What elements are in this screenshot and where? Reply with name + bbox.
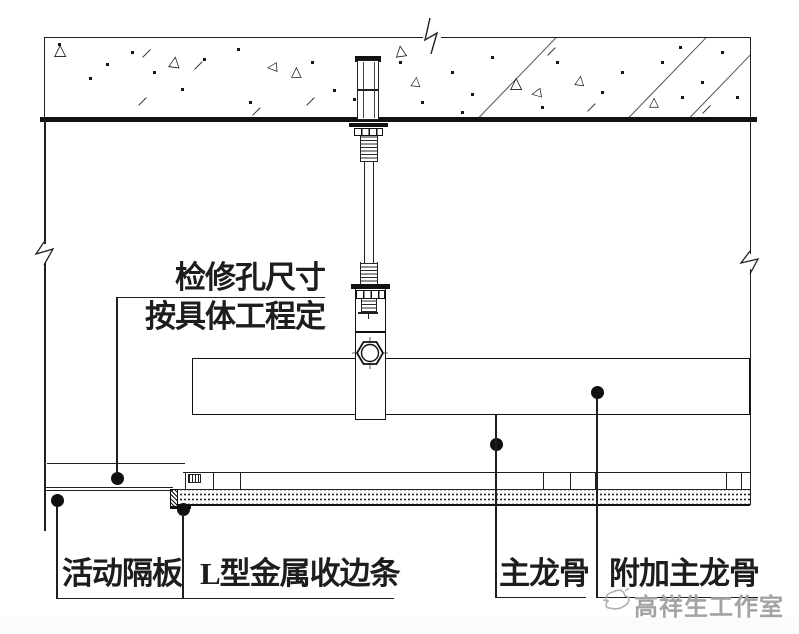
aggregate-dot [237,48,240,51]
aggregate-dot [153,71,156,74]
furring-tick-4 [543,472,544,489]
aggregate-dot [556,61,559,64]
anchor-sleeve-joint [357,89,379,91]
leader-dot-additional-runner [591,386,604,399]
aggregate-dot [679,46,682,49]
furring-tick-2 [213,472,214,489]
furring-clip-detail [188,474,201,483]
edge-trim-leader-vertical [182,514,183,598]
main-runner-label: 主龙骨 [499,558,589,589]
anchor-washer [349,123,388,127]
aggregate-dot [461,111,464,114]
aggregate-dot [621,71,624,74]
aggregate-dot [106,63,109,66]
aggregate-triangle: △ [394,42,408,58]
aggregate-dot [681,96,684,99]
break-symbol-right-wall [739,249,763,276]
furring-tick-7 [726,472,727,489]
bracket-nut [356,290,385,299]
bracket-thread-tail [368,313,369,319]
main-runner-label-underline [495,597,586,598]
aggregate-triangle: △ [168,53,182,69]
aggregate-dash [587,103,596,112]
edge-trim-label-underline [182,598,394,599]
leader-dot-access [111,472,124,485]
slab-hatch: △△△△△△△△△△ [45,38,750,119]
aggregate-dash [138,97,147,106]
aggregate-dot [601,91,604,94]
left-wall-upper [44,120,46,244]
aggregate-dot [333,89,336,92]
aggregate-dot [249,101,252,104]
aggregate-dot [89,77,92,80]
aggregate-dash [252,107,261,116]
aggregate-dot [421,101,424,104]
aggregate-dot [399,61,402,64]
aggregate-dot [203,58,206,61]
anchor-nut [354,128,383,136]
aggregate-dot [131,51,134,54]
studio-logo-icon [601,584,633,614]
additional-runner-leader-vertical [596,398,597,597]
aggregate-dot [491,56,494,59]
aggregate-dash [142,49,151,58]
aggregate-triangle: △ [510,75,522,91]
slab-soffit-line [40,117,757,122]
aggregate-dot [736,96,739,99]
access-note-line2: 按具体工程定 [113,301,325,332]
access-note-line1: 检修孔尺寸 [117,262,325,293]
leader-dot-partition [51,494,64,507]
access-leader-horizontal [117,297,325,298]
furring-top-line [183,472,750,473]
edge-trim-label: L型金属收边条 [200,558,400,589]
aggregate-dot [353,98,356,101]
partition-label-underline [56,598,190,599]
partition-label: 活动隔板 [62,558,182,589]
studio-watermark: 高祥生工作室 [634,587,784,622]
ceiling-board [178,489,750,506]
furring-tick-1 [185,472,186,489]
aggregate-triangle: △ [649,96,659,109]
aggregate-dot [181,88,184,91]
hanger-thread-upper [360,136,378,162]
aggregate-triangle: △ [291,65,302,79]
furring-tick-5 [570,472,571,489]
aggregate-dash [194,61,203,70]
break-symbol-top [420,18,444,54]
hex-bolt-icon [351,334,389,372]
construction-detail-drawing: △△△△△△△△△△ [0,0,799,634]
furring-tick-8 [741,472,742,489]
slab-hatch-line [689,38,750,119]
right-wall-upper [750,120,752,254]
aggregate-triangle: △ [529,87,544,99]
aggregate-dot [701,81,704,84]
aggregate-dot [58,43,61,46]
aggregate-dot [471,93,474,96]
aggregate-dot [721,51,724,54]
bracket-mid-line [355,331,386,333]
partition-top-line-2 [44,490,173,491]
aggregate-dash [306,97,315,106]
partition-top-line-1 [44,487,173,488]
furring-tick-3 [240,472,241,489]
aggregate-dot [451,71,454,74]
aggregate-dot [541,106,544,109]
aggregate-triangle: △ [574,73,586,87]
slab-hatch-line [628,38,709,119]
bracket-top-plate [351,284,390,289]
hanger-thread-lower [360,262,378,285]
hanger-rod [364,162,374,264]
partition-leader-vertical [56,506,57,598]
break-symbol-left-wall [33,240,57,267]
main-runner-leader-vertical [495,415,496,597]
main-runner-box [192,358,750,415]
aggregate-dot [311,61,314,64]
aggregate-triangle: △ [265,62,279,73]
aggregate-dot [661,61,664,64]
aggregate-triangle: △ [410,75,421,89]
aggregate-dash [547,47,556,56]
aggregate-dash [702,105,711,114]
bracket-thread-stub [361,299,377,312]
